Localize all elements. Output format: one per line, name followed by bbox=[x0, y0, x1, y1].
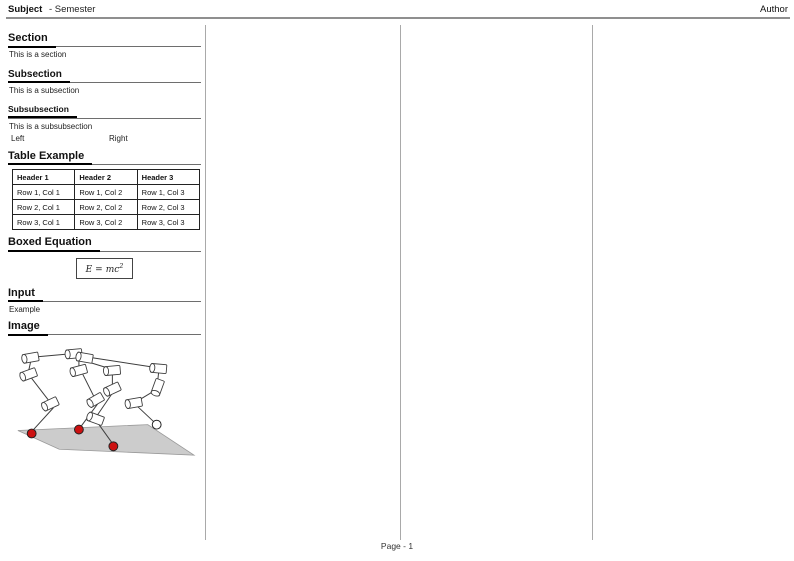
header-title: Subject - Semester bbox=[8, 4, 95, 15]
table-header-cell: Header 1 bbox=[13, 170, 75, 185]
image-heading-title: Image bbox=[8, 320, 48, 336]
section-block: Section This is a section bbox=[8, 28, 201, 60]
image-block: Image bbox=[8, 316, 201, 464]
boxed-equation-block: Boxed Equation E=mc2 bbox=[8, 232, 201, 278]
section-body-text: This is a section bbox=[9, 50, 201, 59]
header-subject: Subject bbox=[8, 4, 42, 15]
subsubsection-body-text: This is a subsubsection bbox=[9, 122, 201, 131]
input-heading: Input bbox=[8, 283, 201, 302]
boxed-equation-heading: Boxed Equation bbox=[8, 232, 201, 251]
subsection-block: Subsection This is a subsection bbox=[8, 64, 201, 96]
example-table-head: Header 1Header 2Header 3 bbox=[13, 170, 200, 185]
subsubsection-heading-title: Subsubsection bbox=[8, 105, 77, 118]
page-footer: Page - 1 bbox=[0, 541, 794, 551]
document-page: Subject - Semester Author Section This i… bbox=[0, 0, 794, 561]
table-row: Row 1, Col 1Row 1, Col 2Row 1, Col 3 bbox=[13, 185, 200, 200]
right-column-text: Right bbox=[109, 134, 128, 143]
figure-container bbox=[8, 338, 201, 464]
table-cell: Row 1, Col 2 bbox=[75, 185, 137, 200]
table-example-heading-title: Table Example bbox=[8, 150, 92, 166]
image-heading: Image bbox=[8, 316, 201, 335]
column-separator-2 bbox=[400, 25, 401, 540]
subsubsection-block: Subsubsection This is a subsubsection bbox=[8, 99, 201, 131]
header-semester: - Semester bbox=[49, 4, 95, 15]
example-table-body: Row 1, Col 1Row 1, Col 2Row 1, Col 3Row … bbox=[13, 185, 200, 230]
equation-box: E=mc2 bbox=[76, 258, 134, 279]
column-separator-1 bbox=[205, 25, 206, 540]
table-cell: Row 3, Col 3 bbox=[137, 215, 199, 230]
header-author: Author bbox=[760, 4, 788, 15]
input-block: Input Example bbox=[8, 283, 201, 315]
page-header: Subject - Semester Author bbox=[8, 4, 788, 15]
equation-lhs: E bbox=[86, 265, 93, 275]
table-cell: Row 1, Col 3 bbox=[137, 185, 199, 200]
left-column-text: Left bbox=[11, 134, 24, 143]
table-cell: Row 1, Col 1 bbox=[13, 185, 75, 200]
input-heading-title: Input bbox=[8, 287, 43, 303]
column-1: Section This is a section Subsection Thi… bbox=[8, 26, 201, 464]
header-rule bbox=[6, 17, 790, 19]
subsection-heading-title: Subsection bbox=[8, 69, 70, 84]
input-body-text: Example bbox=[9, 305, 201, 314]
table-row: Row 3, Col 1Row 3, Col 2Row 3, Col 3 bbox=[13, 215, 200, 230]
example-table: Header 1Header 2Header 3 Row 1, Col 1Row… bbox=[12, 169, 200, 230]
subsubsection-heading: Subsubsection bbox=[8, 99, 201, 118]
table-cell: Row 3, Col 1 bbox=[13, 215, 75, 230]
robot-figure-image bbox=[8, 338, 201, 464]
table-cell: Row 2, Col 3 bbox=[137, 200, 199, 215]
table-example-block: Table Example Header 1Header 2Header 3 R… bbox=[8, 146, 201, 230]
equation-exponent: 2 bbox=[119, 262, 123, 270]
table-header-cell: Header 3 bbox=[137, 170, 199, 185]
equation-relation: = bbox=[95, 265, 103, 275]
column-separator-3 bbox=[592, 25, 593, 540]
equation-rhs: mc bbox=[106, 265, 120, 275]
subsection-body-text: This is a subsection bbox=[9, 86, 201, 95]
boxed-equation-heading-title: Boxed Equation bbox=[8, 236, 100, 252]
subsection-heading: Subsection bbox=[8, 64, 201, 83]
table-example-heading: Table Example bbox=[8, 146, 201, 165]
table-cell: Row 3, Col 2 bbox=[75, 215, 137, 230]
table-cell: Row 2, Col 1 bbox=[13, 200, 75, 215]
table-row: Row 2, Col 1Row 2, Col 2Row 2, Col 3 bbox=[13, 200, 200, 215]
table-cell: Row 2, Col 2 bbox=[75, 200, 137, 215]
table-header-cell: Header 2 bbox=[75, 170, 137, 185]
table-header-row: Header 1Header 2Header 3 bbox=[13, 170, 200, 185]
two-column-demo-row: Left Right bbox=[8, 133, 201, 144]
section-heading-title: Section bbox=[8, 32, 56, 48]
section-heading: Section bbox=[8, 28, 201, 47]
